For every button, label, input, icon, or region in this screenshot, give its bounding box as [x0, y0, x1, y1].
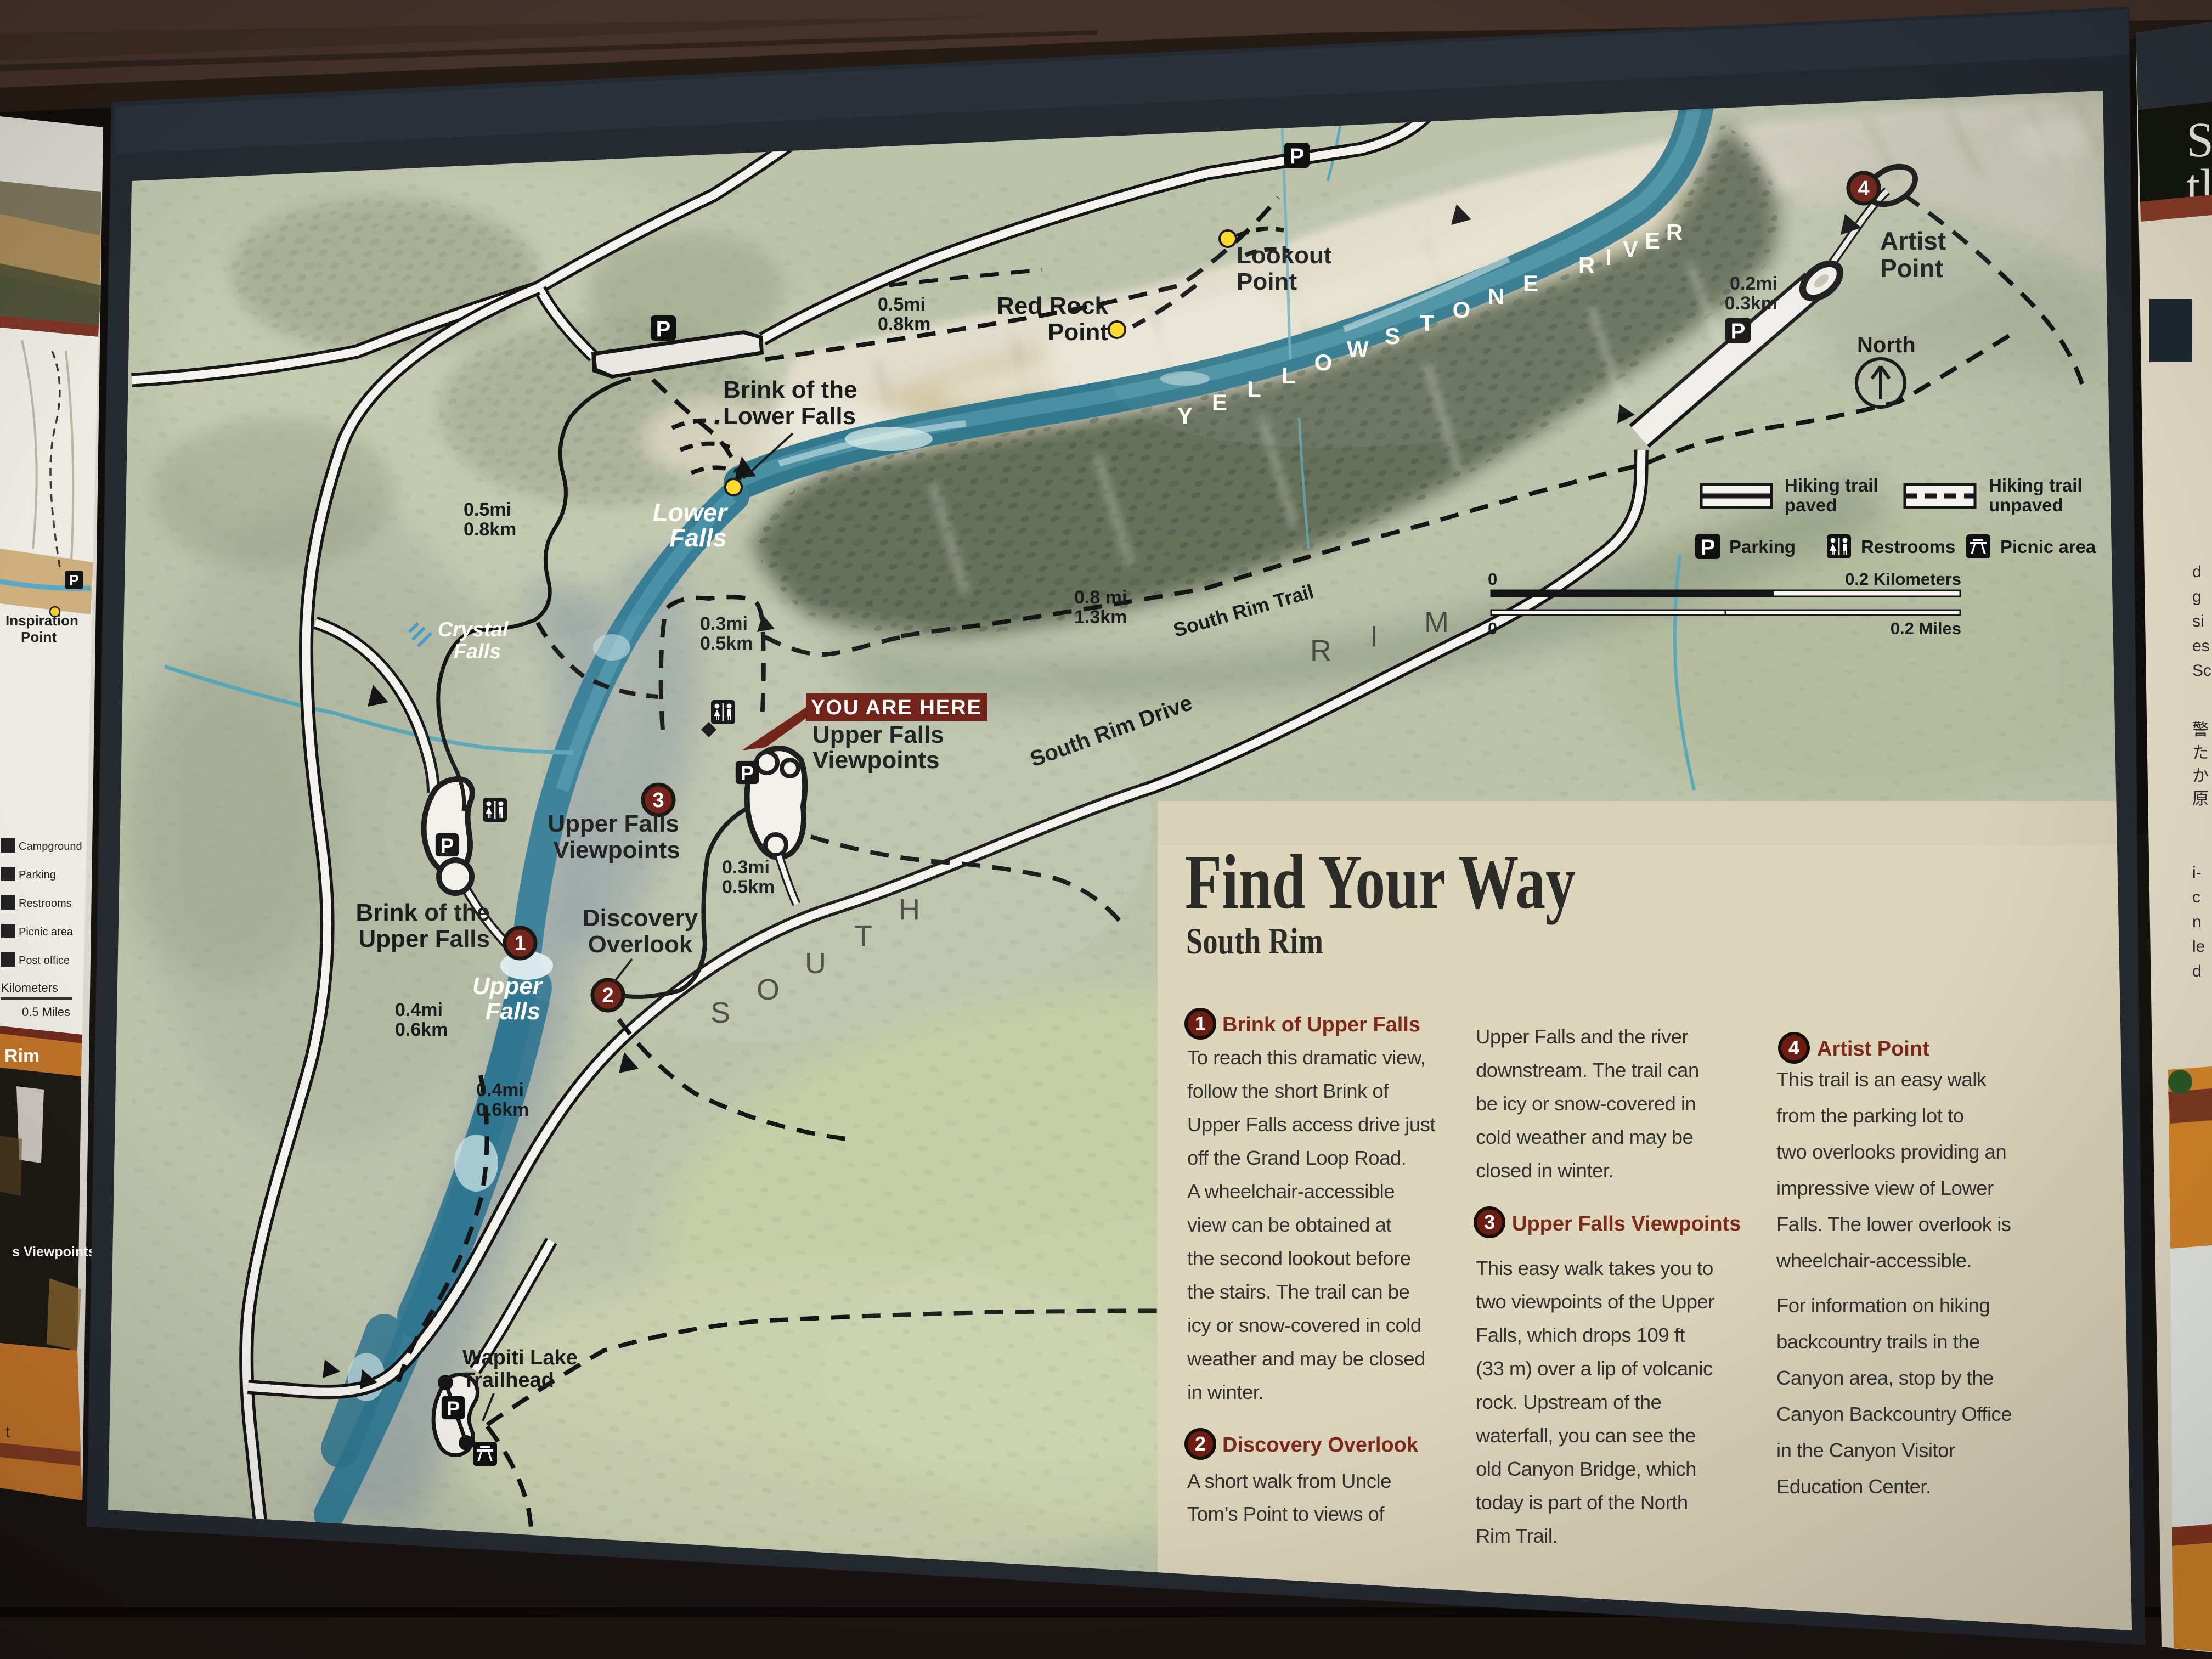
svg-text:Picnic area: Picnic area — [19, 926, 74, 938]
svg-text:R: R — [1310, 634, 1331, 667]
svg-text:n: n — [2192, 913, 2202, 931]
svg-text:原: 原 — [2192, 790, 2209, 808]
svg-text:1.3km: 1.3km — [1074, 607, 1127, 628]
svg-text:Canyon area, stop by the: Canyon area, stop by the — [1776, 1367, 1994, 1389]
svg-text:Education Center.: Education Center. — [1776, 1475, 1931, 1498]
svg-text:backcountry trails in the: backcountry trails in the — [1776, 1330, 1980, 1353]
svg-text:Restrooms: Restrooms — [1861, 537, 1955, 557]
svg-text:Falls: Falls — [486, 998, 540, 1025]
svg-text:Upper Falls Viewpoints: Upper Falls Viewpoints — [1512, 1212, 1741, 1235]
svg-text:es: es — [2192, 637, 2210, 655]
svg-text:I: I — [1370, 620, 1378, 653]
svg-text:s Viewpoints: s Viewpoints — [12, 1244, 95, 1260]
svg-text:Upper Falls and the river: Upper Falls and the river — [1476, 1025, 1688, 1048]
svg-text:Wapiti Lake: Wapiti Lake — [462, 1346, 578, 1369]
svg-text:For information on hiking: For information on hiking — [1776, 1294, 1990, 1317]
svg-text:0.6km: 0.6km — [395, 1019, 448, 1040]
svg-text:downstream. The trail can: downstream. The trail can — [1476, 1059, 1699, 1081]
svg-text:か: か — [2192, 767, 2209, 785]
svg-text:A short walk from Uncle: A short walk from Uncle — [1187, 1470, 1391, 1492]
svg-text:4: 4 — [1788, 1036, 1799, 1059]
svg-text:Restrooms: Restrooms — [19, 898, 72, 910]
svg-text:the second lookout before: the second lookout before — [1187, 1247, 1411, 1269]
svg-text:g: g — [2192, 588, 2202, 606]
svg-text:Brink of Upper Falls: Brink of Upper Falls — [1222, 1013, 1420, 1036]
svg-text:Upper Falls access drive just: Upper Falls access drive just — [1187, 1113, 1435, 1136]
svg-text:Parking: Parking — [1729, 537, 1796, 557]
svg-text:2: 2 — [1195, 1432, 1206, 1455]
svg-text:(33 m) over a lip of volcanic: (33 m) over a lip of volcanic — [1476, 1357, 1713, 1380]
svg-text:To reach this dramatic view,: To reach this dramatic view, — [1187, 1046, 1425, 1069]
svg-text:icy or snow-covered in cold: icy or snow-covered in cold — [1187, 1314, 1421, 1336]
svg-text:Sc: Sc — [2192, 662, 2211, 680]
svg-text:Falls: Falls — [669, 523, 727, 552]
svg-text:Find Your Way: Find Your Way — [1185, 838, 1576, 925]
svg-text:Brink of the: Brink of the — [723, 376, 857, 403]
svg-text:1: 1 — [1195, 1012, 1206, 1035]
svg-text:c: c — [2192, 888, 2200, 906]
svg-text:Red Rock: Red Rock — [997, 292, 1108, 319]
svg-text:P: P — [69, 572, 78, 588]
svg-text:Post office: Post office — [19, 955, 70, 967]
svg-text:Canyon Backcountry Office: Canyon Backcountry Office — [1776, 1403, 2012, 1425]
svg-text:off the Grand Loop Road.: off the Grand Loop Road. — [1187, 1147, 1406, 1169]
svg-text:0.6km: 0.6km — [476, 1099, 529, 1120]
svg-text:0.5mi: 0.5mi — [878, 294, 926, 315]
svg-text:Rim: Rim — [4, 1046, 39, 1066]
svg-text:Hiking trail: Hiking trail — [1989, 475, 2083, 495]
svg-text:Rim Trail.: Rim Trail. — [1476, 1525, 1558, 1547]
svg-text:Parking: Parking — [19, 869, 56, 881]
svg-text:two overlooks providing an: two overlooks providing an — [1776, 1141, 2006, 1163]
svg-text:Falls: Falls — [454, 640, 501, 663]
svg-text:i-: i- — [2192, 864, 2202, 882]
svg-text:Picnic area: Picnic area — [2000, 537, 2096, 557]
svg-text:Tom’s Point to views of: Tom’s Point to views of — [1187, 1503, 1385, 1525]
svg-text:si: si — [2192, 612, 2204, 630]
svg-text:rock. Upstream of the: rock. Upstream of the — [1476, 1391, 1661, 1413]
svg-text:Lower Falls: Lower Falls — [723, 403, 856, 430]
svg-text:0.4mi: 0.4mi — [476, 1080, 524, 1101]
svg-text:today is part of the North: today is part of the North — [1476, 1491, 1688, 1514]
svg-text:in winter.: in winter. — [1187, 1381, 1263, 1403]
svg-text:d: d — [2192, 962, 2202, 980]
svg-text:This trail is an easy walk: This trail is an easy walk — [1776, 1068, 1987, 1091]
svg-text:follow the short Brink of: follow the short Brink of — [1187, 1080, 1389, 1102]
svg-text:Hiking trail: Hiking trail — [1785, 475, 1878, 495]
svg-text:Discovery Overlook: Discovery Overlook — [1222, 1434, 1419, 1457]
svg-text:3: 3 — [1484, 1211, 1495, 1233]
svg-text:Artist Point: Artist Point — [1817, 1037, 1929, 1060]
svg-text:0: 0 — [1488, 569, 1497, 589]
svg-text:South Rim: South Rim — [1186, 920, 1323, 962]
svg-text:from the parking lot to: from the parking lot to — [1776, 1104, 1964, 1127]
svg-text:wheelchair-accessible.: wheelchair-accessible. — [1776, 1249, 1972, 1272]
svg-text:This easy walk takes you to: This easy walk takes you to — [1476, 1257, 1713, 1279]
svg-text:in the Canyon Visitor: in the Canyon Visitor — [1776, 1439, 1955, 1462]
svg-text:0.4mi: 0.4mi — [395, 1000, 443, 1020]
svg-text:impressive view of Lower: impressive view of Lower — [1776, 1177, 1994, 1199]
svg-text:Trailhead: Trailhead — [462, 1369, 554, 1392]
svg-text:Kilometers: Kilometers — [1, 981, 58, 995]
svg-text:waterfall, you can see the: waterfall, you can see the — [1475, 1424, 1696, 1447]
svg-text:weather and may be closed: weather and may be closed — [1187, 1347, 1425, 1370]
svg-text:le: le — [2192, 938, 2205, 956]
svg-text:cold weather and may be: cold weather and may be — [1476, 1126, 1693, 1148]
svg-text:Point: Point — [1048, 319, 1108, 346]
svg-text:A wheelchair-accessible: A wheelchair-accessible — [1187, 1180, 1395, 1203]
svg-text:d: d — [2192, 563, 2202, 581]
svg-text:the stairs. The trail can be: the stairs. The trail can be — [1187, 1280, 1409, 1303]
svg-text:0: 0 — [1488, 619, 1497, 638]
svg-text:Falls. The lower overlook is: Falls. The lower overlook is — [1776, 1213, 2011, 1235]
svg-text:two viewpoints of the Upper: two viewpoints of the Upper — [1476, 1290, 1714, 1313]
svg-text:be icy or snow-covered in: be icy or snow-covered in — [1476, 1092, 1696, 1115]
svg-text:unpaved: unpaved — [1989, 495, 2063, 515]
svg-text:t: t — [5, 1423, 10, 1441]
svg-text:Crystal: Crystal — [438, 618, 509, 641]
svg-text:Point: Point — [21, 629, 57, 645]
svg-text:closed in winter.: closed in winter. — [1476, 1159, 1613, 1182]
svg-text:0.5 Miles: 0.5 Miles — [22, 1005, 70, 1019]
svg-text:0.5mi: 0.5mi — [464, 499, 511, 520]
svg-text:0.8km: 0.8km — [878, 314, 930, 335]
svg-text:Inspiration: Inspiration — [5, 612, 78, 629]
svg-text:Falls, which drops 109 ft: Falls, which drops 109 ft — [1476, 1324, 1685, 1346]
svg-text:old Canyon Bridge, which: old Canyon Bridge, which — [1476, 1458, 1696, 1480]
svg-text:view can be obtained at: view can be obtained at — [1187, 1214, 1391, 1236]
svg-text:0.8km: 0.8km — [464, 519, 516, 540]
svg-text:0.2 Miles: 0.2 Miles — [1891, 619, 1961, 638]
svg-text:た: た — [2192, 744, 2209, 762]
svg-text:警: 警 — [2192, 721, 2209, 739]
svg-text:0.2 Kilometers: 0.2 Kilometers — [1845, 569, 1961, 589]
svg-text:paved: paved — [1785, 495, 1837, 515]
svg-text:0.8 mi: 0.8 mi — [1074, 587, 1127, 608]
svg-text:Lower: Lower — [653, 498, 729, 527]
svg-text:Campground: Campground — [19, 840, 82, 853]
svg-text:M: M — [1424, 606, 1449, 639]
